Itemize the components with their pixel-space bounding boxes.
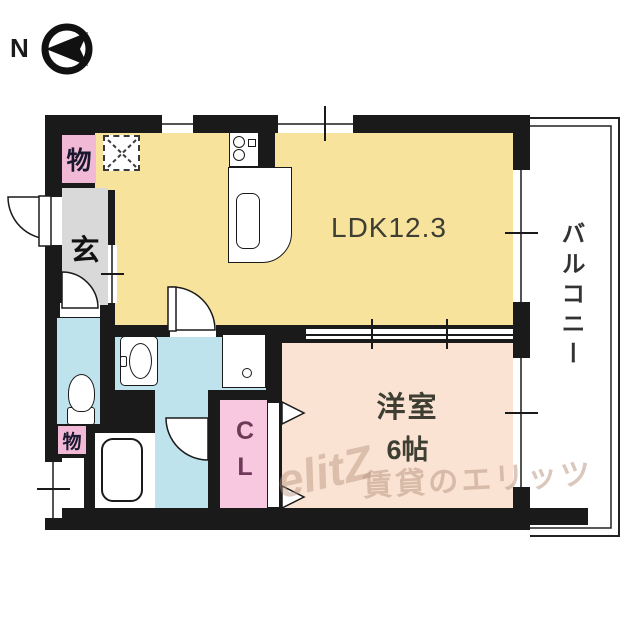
closet-label: CL (230, 417, 258, 502)
washbasin (120, 336, 158, 386)
corner-floor (62, 458, 84, 508)
storage-bottom-label: 物 (62, 427, 81, 454)
toilet-bowl-icon (68, 374, 95, 412)
stove-grill-icon (248, 139, 256, 147)
balcony-divider-wall (530, 508, 588, 525)
ldk-room (115, 133, 513, 325)
compass-arrow-icon (46, 32, 88, 66)
genkan-label: 玄 (62, 227, 108, 269)
washing-machine-pan (222, 334, 266, 388)
storage-bottom-box: 物 (58, 426, 86, 454)
kitchen-counter (228, 167, 292, 263)
drain-icon (242, 368, 252, 378)
window-top-small (162, 115, 193, 133)
western-room-name: 洋室 (340, 384, 475, 426)
balcony-label: バルコニー (553, 221, 588, 431)
kitchen-stove (229, 132, 259, 167)
hall-ldk-opening (108, 245, 117, 303)
entrance-door-swing-icon (8, 197, 50, 239)
entrance-opening (45, 197, 62, 245)
stove-burner-icon (233, 136, 245, 148)
north-label: N (10, 33, 29, 64)
washbasin-bowl-icon (129, 343, 152, 379)
compass-ring-icon (45, 27, 89, 71)
washroom-lower (155, 390, 208, 508)
kitchen-sink (236, 193, 260, 249)
storage-top-label: 物 (66, 141, 91, 177)
sliding-partition (306, 327, 513, 341)
stove-burner-icon (233, 149, 245, 161)
ceiling-hatch (103, 135, 140, 171)
bathtub (101, 438, 143, 502)
washbasin-tap-icon (120, 356, 127, 367)
window-left-bath (45, 462, 62, 518)
floorplan-page: { "compass": { "north": "N" }, "rooms": … (0, 0, 640, 640)
washroom-door-opening (170, 325, 216, 337)
window-top-large (278, 115, 353, 133)
hall-door-opening (60, 303, 100, 317)
ldk-label: LDK12.3 (331, 212, 447, 244)
window-balcony-ldk (513, 170, 530, 302)
storage-top-box: 物 (62, 135, 96, 183)
